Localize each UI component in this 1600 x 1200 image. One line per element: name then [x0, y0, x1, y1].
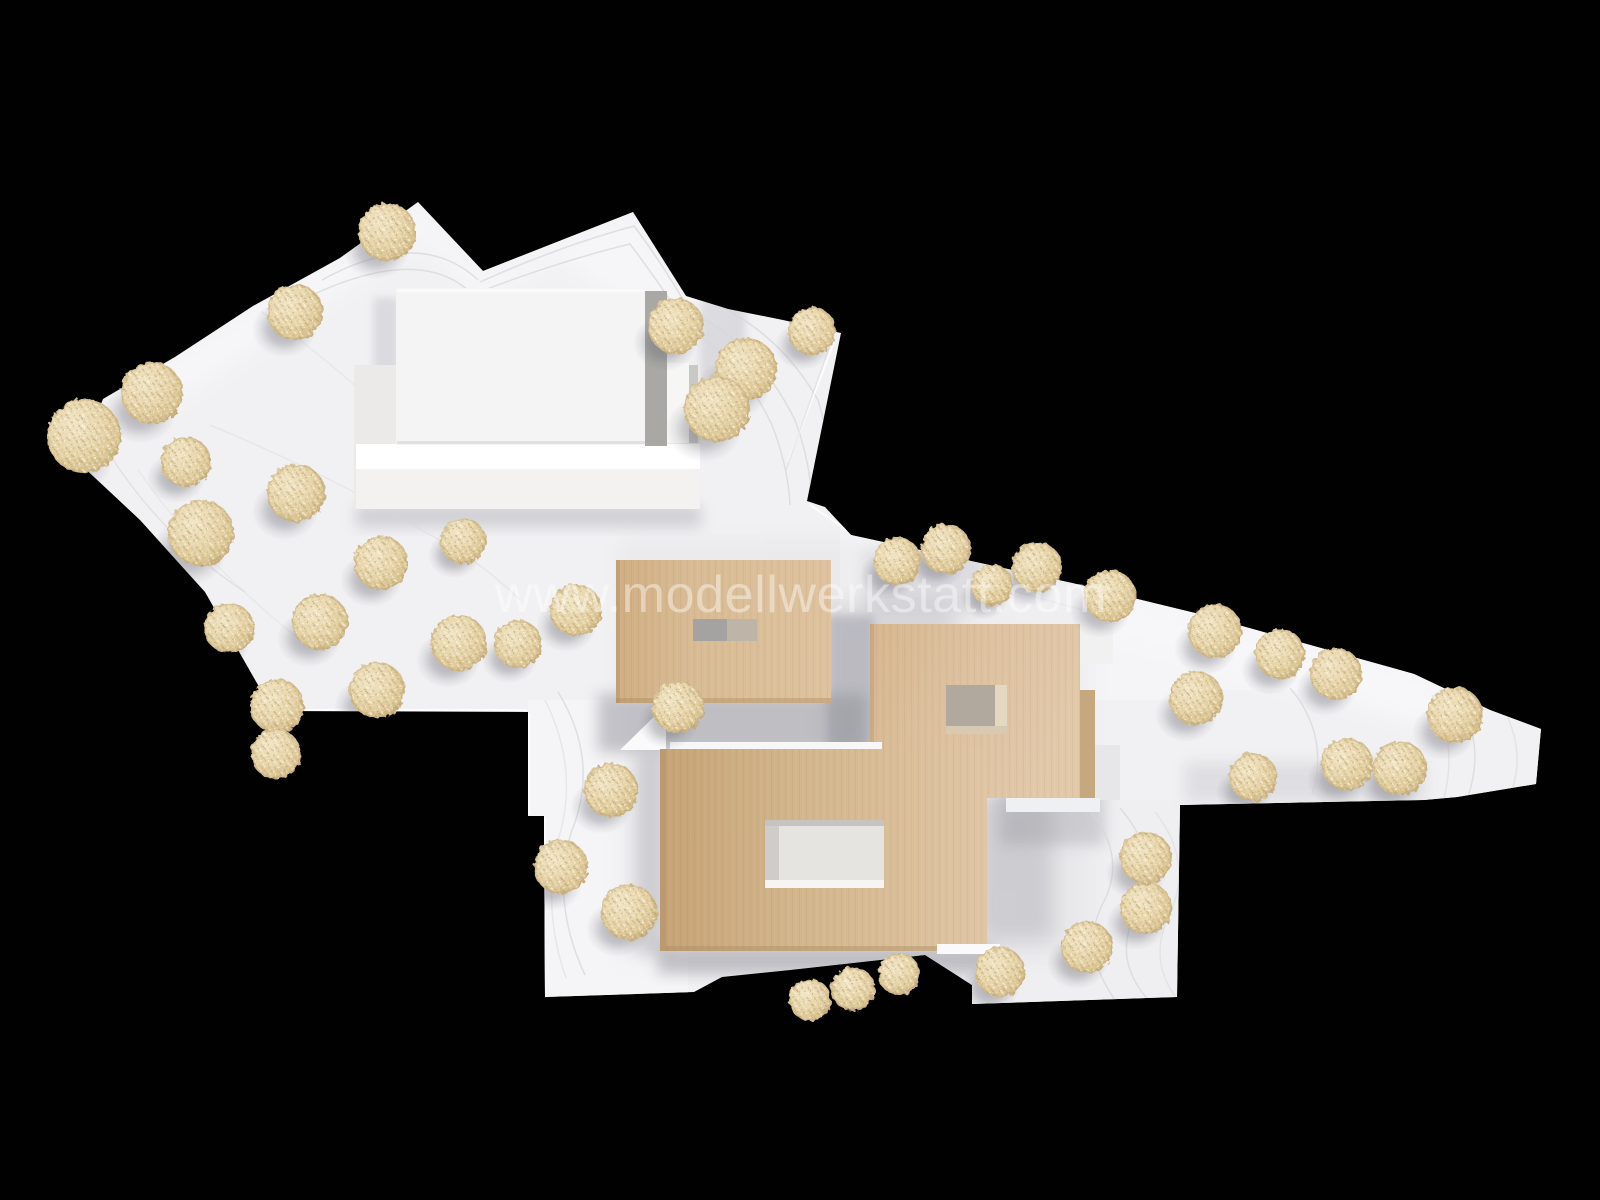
svg-text:www.modellwerkstatt.com: www.modellwerkstatt.com: [494, 566, 1107, 624]
